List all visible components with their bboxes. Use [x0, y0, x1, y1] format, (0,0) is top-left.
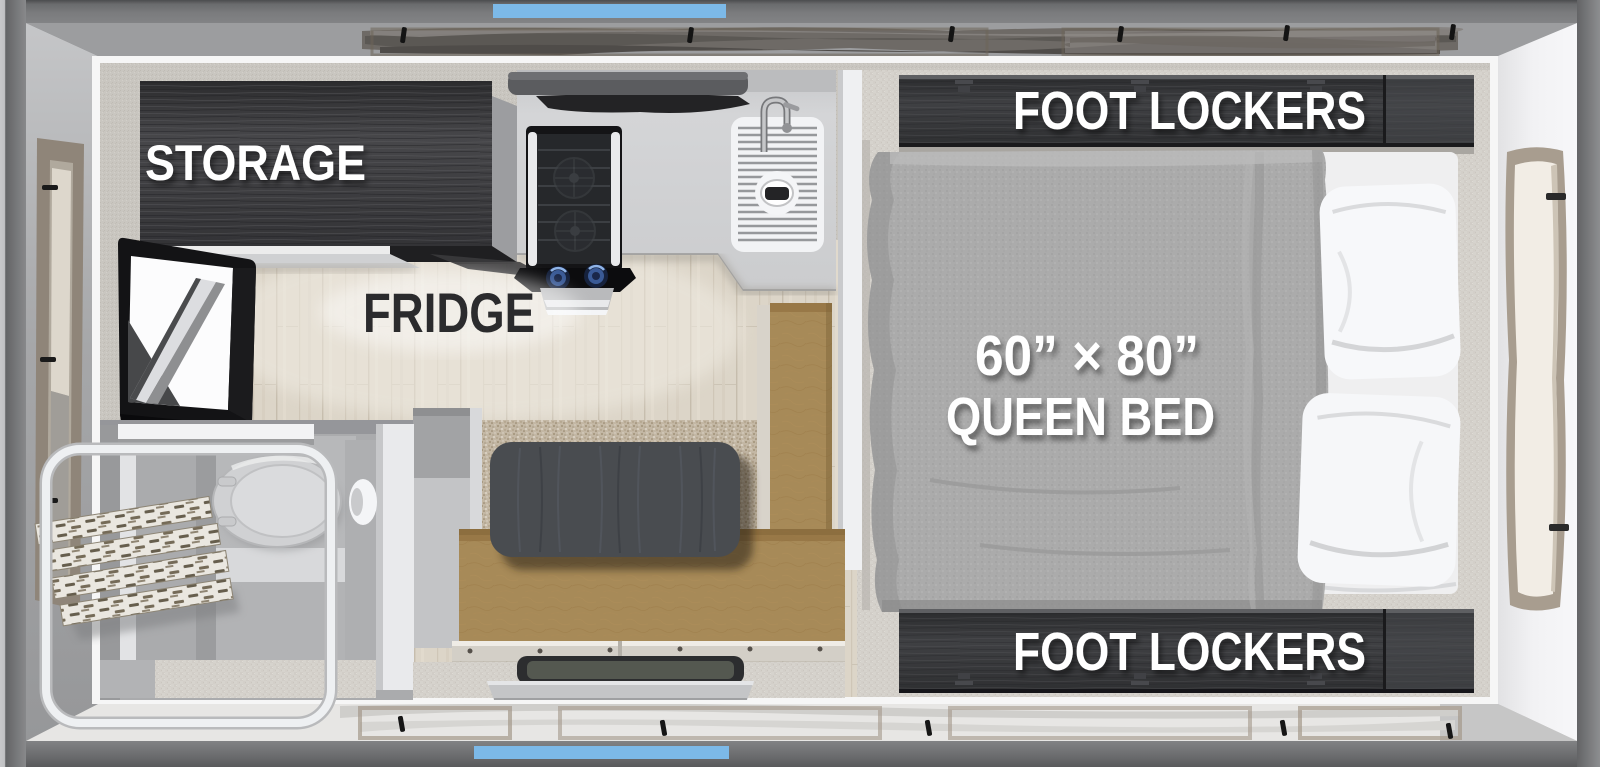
svg-text:FOOT LOCKERS: FOOT LOCKERS [1013, 81, 1366, 141]
svg-text:FOOT LOCKERS: FOOT LOCKERS [1013, 622, 1366, 682]
svg-text:FRIDGE: FRIDGE [363, 281, 535, 344]
svg-text:QUEEN BED: QUEEN BED [946, 387, 1215, 447]
svg-text:60” × 80”: 60” × 80” [975, 324, 1199, 388]
svg-text:STORAGE: STORAGE [145, 135, 366, 191]
